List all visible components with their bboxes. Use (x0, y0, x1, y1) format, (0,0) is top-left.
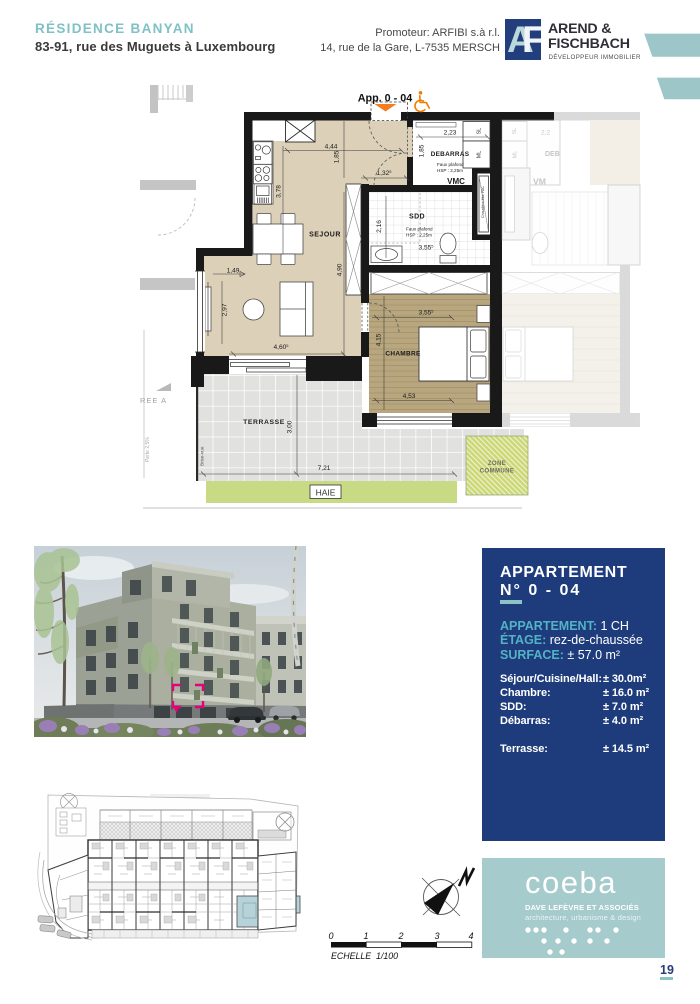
svg-text:7,21: 7,21 (318, 465, 331, 472)
svg-text:VMC: VMC (447, 177, 465, 186)
svg-text:3,00: 3,00 (287, 420, 294, 433)
svg-text:HAIE: HAIE (316, 488, 336, 498)
svg-text:SDD: SDD (409, 214, 425, 221)
svg-text:Faux plafond: Faux plafond (437, 162, 464, 167)
svg-text:Perte 2,5%: Perte 2,5% (145, 437, 151, 462)
svg-text:ML: ML (477, 151, 483, 158)
svg-text:Faux plafond: Faux plafond (406, 227, 433, 232)
svg-text:Chaudière Mur PAC: Chaudière Mur PAC (481, 186, 485, 218)
svg-text:HSP : 2,25m: HSP : 2,25m (406, 233, 432, 238)
svg-text:ECHELLE 1/100: ECHELLE 1/100 (331, 951, 398, 961)
svg-text:Brise-vue: Brise-vue (200, 446, 205, 466)
svg-text:0: 0 (328, 931, 333, 941)
svg-text:ML: ML (513, 151, 519, 158)
svg-text:1,49: 1,49 (227, 268, 240, 275)
svg-text:SEJOUR: SEJOUR (309, 232, 341, 239)
svg-text:SL: SL (512, 128, 518, 134)
svg-text:1: 1 (363, 931, 368, 941)
svg-text:REE A: REE A (140, 396, 167, 405)
svg-text:2,2: 2,2 (541, 130, 550, 137)
svg-text:2: 2 (397, 931, 403, 941)
svg-text:4,15: 4,15 (376, 333, 383, 346)
svg-text:ZONE: ZONE (488, 461, 506, 467)
svg-text:4: 4 (468, 931, 473, 941)
svg-text:4,53: 4,53 (403, 393, 416, 400)
svg-text:2,97: 2,97 (222, 303, 229, 316)
svg-text:DEB: DEB (545, 151, 560, 158)
svg-text:COMMUNE: COMMUNE (480, 469, 514, 475)
svg-text:3,78: 3,78 (276, 185, 283, 198)
svg-text:4,90: 4,90 (337, 263, 344, 276)
svg-text:4,44: 4,44 (325, 143, 338, 150)
svg-text:3: 3 (434, 931, 439, 941)
svg-text:1,85: 1,85 (334, 150, 341, 163)
svg-text:HSP : 2,25m: HSP : 2,25m (437, 168, 463, 173)
svg-text:SL: SL (477, 128, 483, 134)
svg-text:1,85: 1,85 (419, 144, 426, 157)
svg-text:VM: VM (533, 177, 546, 187)
svg-text:2,16: 2,16 (376, 220, 383, 233)
svg-text:DEBARRAS: DEBARRAS (431, 151, 470, 158)
svg-text:CHAMBRE: CHAMBRE (385, 351, 421, 358)
svg-text:2,23: 2,23 (444, 130, 457, 137)
svg-text:TERRASSE: TERRASSE (243, 419, 285, 426)
svg-text:App. 0 - 04: App. 0 - 04 (358, 93, 413, 105)
